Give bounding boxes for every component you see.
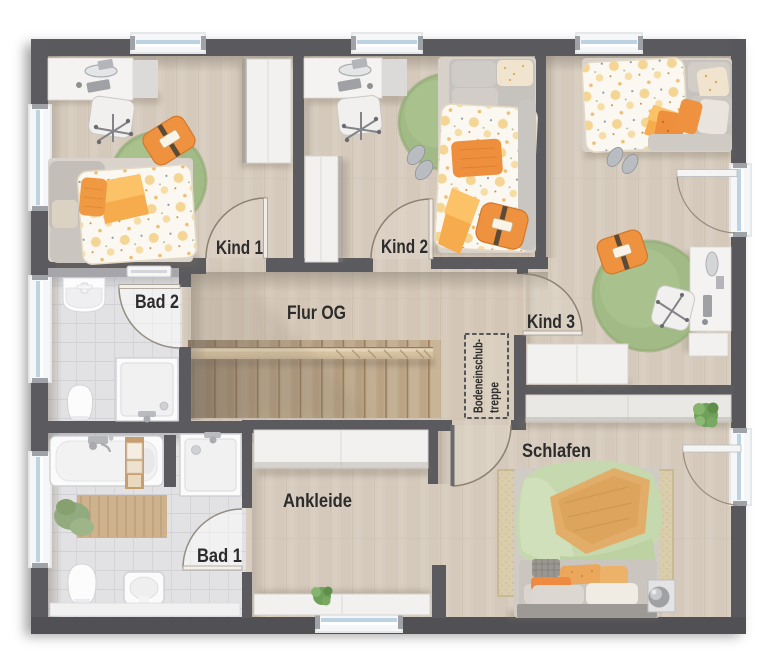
svg-text:Ankleide: Ankleide [283, 491, 352, 512]
svg-text:Kind 2: Kind 2 [381, 237, 428, 258]
svg-text:treppe: treppe [488, 382, 502, 413]
svg-text:Kind 3: Kind 3 [527, 312, 575, 333]
svg-text:Flur OG: Flur OG [287, 303, 346, 324]
svg-text:Schlafen: Schlafen [522, 441, 591, 462]
svg-text:Kind 1: Kind 1 [216, 238, 263, 259]
svg-text:Bad 1: Bad 1 [197, 546, 242, 567]
svg-text:Bodeneinschub-: Bodeneinschub- [472, 339, 486, 413]
svg-text:Bad 2: Bad 2 [135, 292, 179, 313]
